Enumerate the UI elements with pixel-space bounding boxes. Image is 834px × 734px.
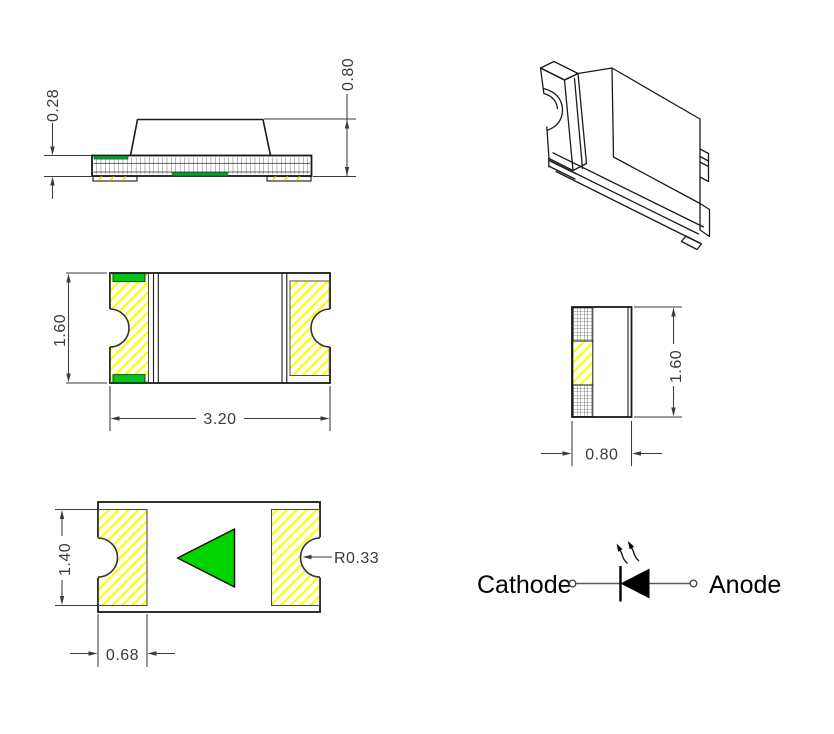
arrowhead (671, 408, 675, 417)
arrowhead (345, 167, 349, 176)
isometric-view (541, 62, 710, 250)
drawing-svg: 0.28 0.80 (0, 0, 834, 734)
green-mark-top-left (94, 156, 128, 159)
iso-cap-right (700, 204, 710, 237)
dim-label-end-height: 1.60 (668, 350, 685, 383)
iso-notch-arcs (544, 89, 563, 131)
iso-cap-inner-line (575, 79, 583, 169)
arrowhead (563, 451, 572, 455)
iso-right-tab (700, 149, 709, 182)
arrowhead (671, 308, 675, 317)
dim-label-pad-height: 1.40 (57, 543, 74, 576)
iso-foot-right (682, 236, 702, 250)
iso-body-face (612, 68, 700, 204)
dim-label-notch-radius: R0.33 (334, 550, 379, 567)
arrowhead (66, 374, 70, 383)
cathode-terminal-circle (569, 580, 576, 587)
dim-1-60-top-lines (66, 273, 107, 383)
anode-label: Anode (709, 571, 781, 599)
iso-top-edge (578, 68, 612, 74)
green-polarity-mark-bottom (113, 375, 145, 383)
arrowhead (321, 416, 330, 420)
green-mark-bottom-center (173, 173, 228, 176)
polarity-symbol: Cathode Anode (477, 541, 781, 602)
dim-label-side-height: 0.80 (340, 58, 357, 91)
dim-0-28-lines (44, 123, 91, 199)
arrowhead (89, 651, 98, 655)
green-polarity-mark-top (113, 274, 145, 282)
arrowhead (66, 274, 70, 283)
end-view: 1.60 0.80 (541, 307, 685, 466)
dim-label-pad-offset: 0.68 (106, 647, 139, 664)
lens-profile (131, 120, 271, 156)
dim-label-end-width: 0.80 (585, 447, 618, 464)
led-package-drawing: 0.28 0.80 (0, 0, 834, 734)
arrowhead (111, 416, 120, 420)
arrowhead (50, 147, 54, 156)
arrowhead (148, 651, 157, 655)
arrowhead (60, 510, 64, 519)
dim-label-side-thickness: 0.28 (45, 89, 62, 122)
arrowhead (60, 596, 64, 605)
bottom-view: 1.40 0.68 R0.33 (55, 502, 379, 667)
cathode-label: Cathode (477, 571, 572, 599)
end-body-hatch (573, 341, 593, 385)
end-terminal-top (573, 308, 593, 341)
arrowhead (632, 451, 641, 455)
arrowhead (345, 120, 349, 129)
dim-label-top-height: 1.60 (52, 314, 69, 347)
anode-terminal-circle (690, 580, 697, 587)
emission-arrows (620, 547, 640, 564)
top-view: 1.60 3.20 (52, 273, 332, 431)
diode-triangle (621, 569, 650, 599)
side-view: 0.28 0.80 (44, 58, 357, 199)
dim-label-top-width: 3.20 (203, 411, 236, 428)
arrowhead (50, 177, 54, 186)
substrate-grid-hatch (94, 157, 311, 174)
emission-arrowhead (628, 541, 634, 549)
iso-flange (549, 153, 704, 244)
end-terminal-bottom (573, 385, 593, 417)
emission-arrowhead (617, 544, 623, 552)
